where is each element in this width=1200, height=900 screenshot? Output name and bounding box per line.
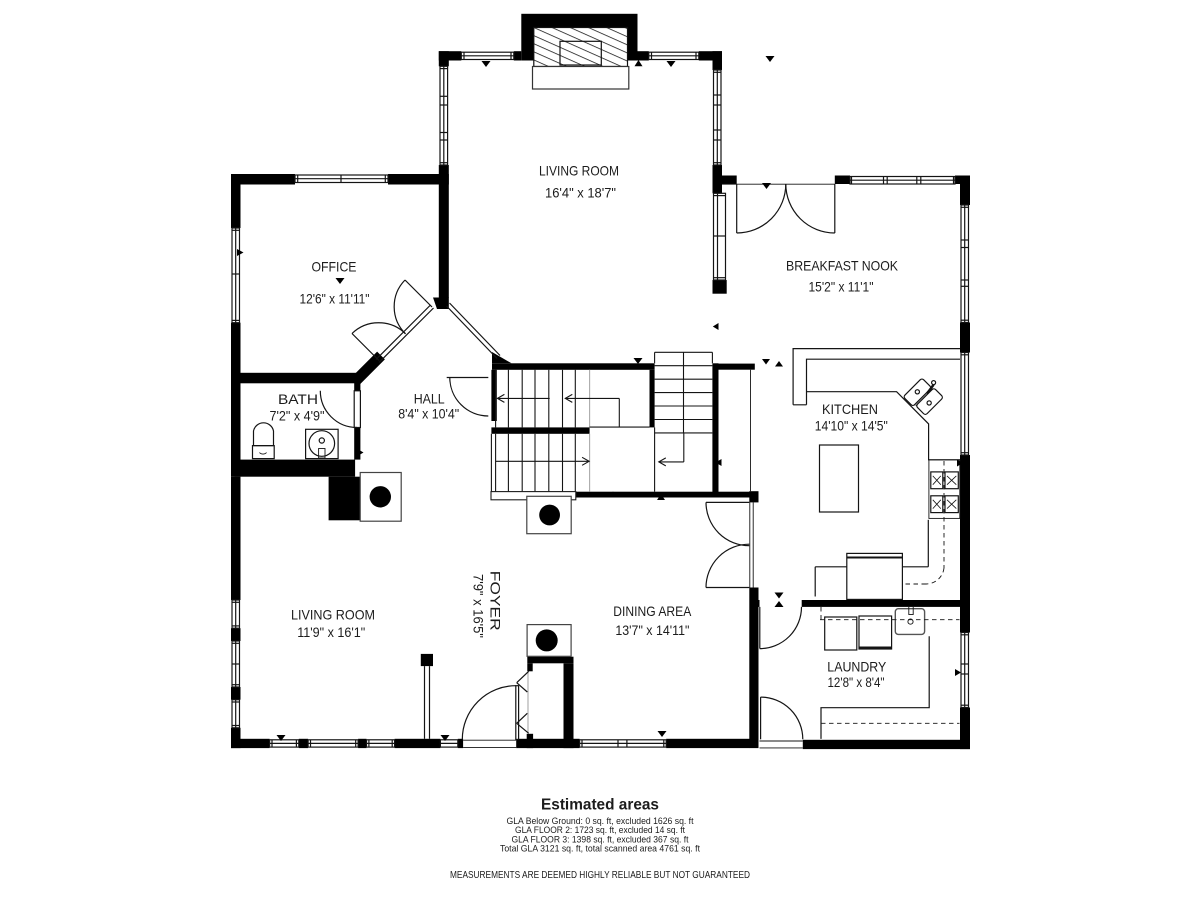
svg-text:BATH: BATH: [278, 392, 318, 407]
svg-text:LIVING ROOM: LIVING ROOM: [291, 608, 375, 623]
svg-text:11'9" x 16'1": 11'9" x 16'1": [297, 625, 365, 640]
svg-text:BREAKFAST NOOK: BREAKFAST NOOK: [786, 259, 898, 274]
svg-text:LAUNDRY: LAUNDRY: [827, 660, 886, 675]
svg-text:OFFICE: OFFICE: [312, 260, 357, 275]
svg-text:14'10" x 14'5": 14'10" x 14'5": [815, 419, 888, 434]
svg-text:13'7" x 14'11": 13'7" x 14'11": [615, 623, 689, 638]
svg-text:12'8" x 8'4": 12'8" x 8'4": [828, 675, 885, 690]
svg-text:Estimated areas: Estimated areas: [541, 797, 659, 814]
svg-text:MEASUREMENTS ARE DEEMED HIGHLY: MEASUREMENTS ARE DEEMED HIGHLY RELIABLE …: [450, 869, 750, 881]
svg-text:16'4" x 18'7": 16'4" x 18'7": [545, 186, 616, 201]
svg-text:7'2" x 4'9": 7'2" x 4'9": [270, 409, 325, 424]
svg-text:FOYER: FOYER: [488, 571, 503, 631]
svg-text:8'4" x 10'4": 8'4" x 10'4": [398, 407, 459, 422]
svg-text:KITCHEN: KITCHEN: [822, 402, 878, 417]
svg-text:15'2" x 11'1": 15'2" x 11'1": [809, 280, 874, 295]
svg-text:7'9" x 16'5": 7'9" x 16'5": [471, 574, 486, 638]
svg-text:DINING AREA: DINING AREA: [613, 604, 692, 619]
svg-text:HALL: HALL: [414, 392, 445, 407]
svg-text:Total GLA 3121 sq. ft, total s: Total GLA 3121 sq. ft, total scanned are…: [500, 844, 700, 854]
svg-text:12'6" x 11'11": 12'6" x 11'11": [300, 292, 370, 307]
svg-text:LIVING ROOM: LIVING ROOM: [539, 164, 619, 179]
